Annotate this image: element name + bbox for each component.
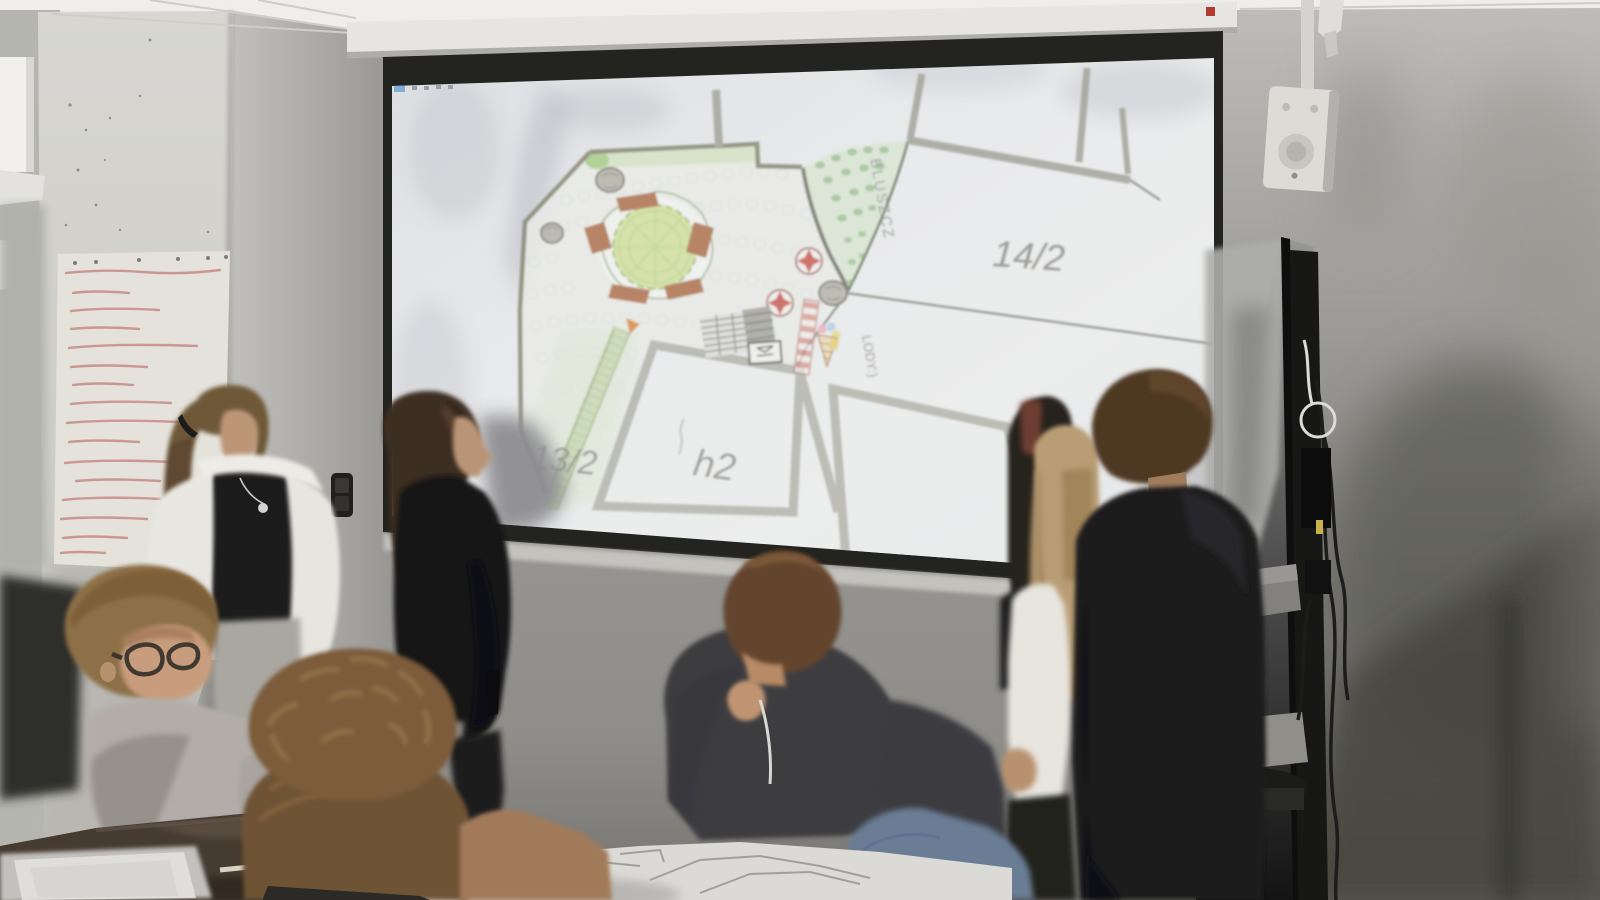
svg-text:14/2: 14/2 — [991, 233, 1066, 279]
svg-text:h2: h2 — [691, 442, 739, 489]
